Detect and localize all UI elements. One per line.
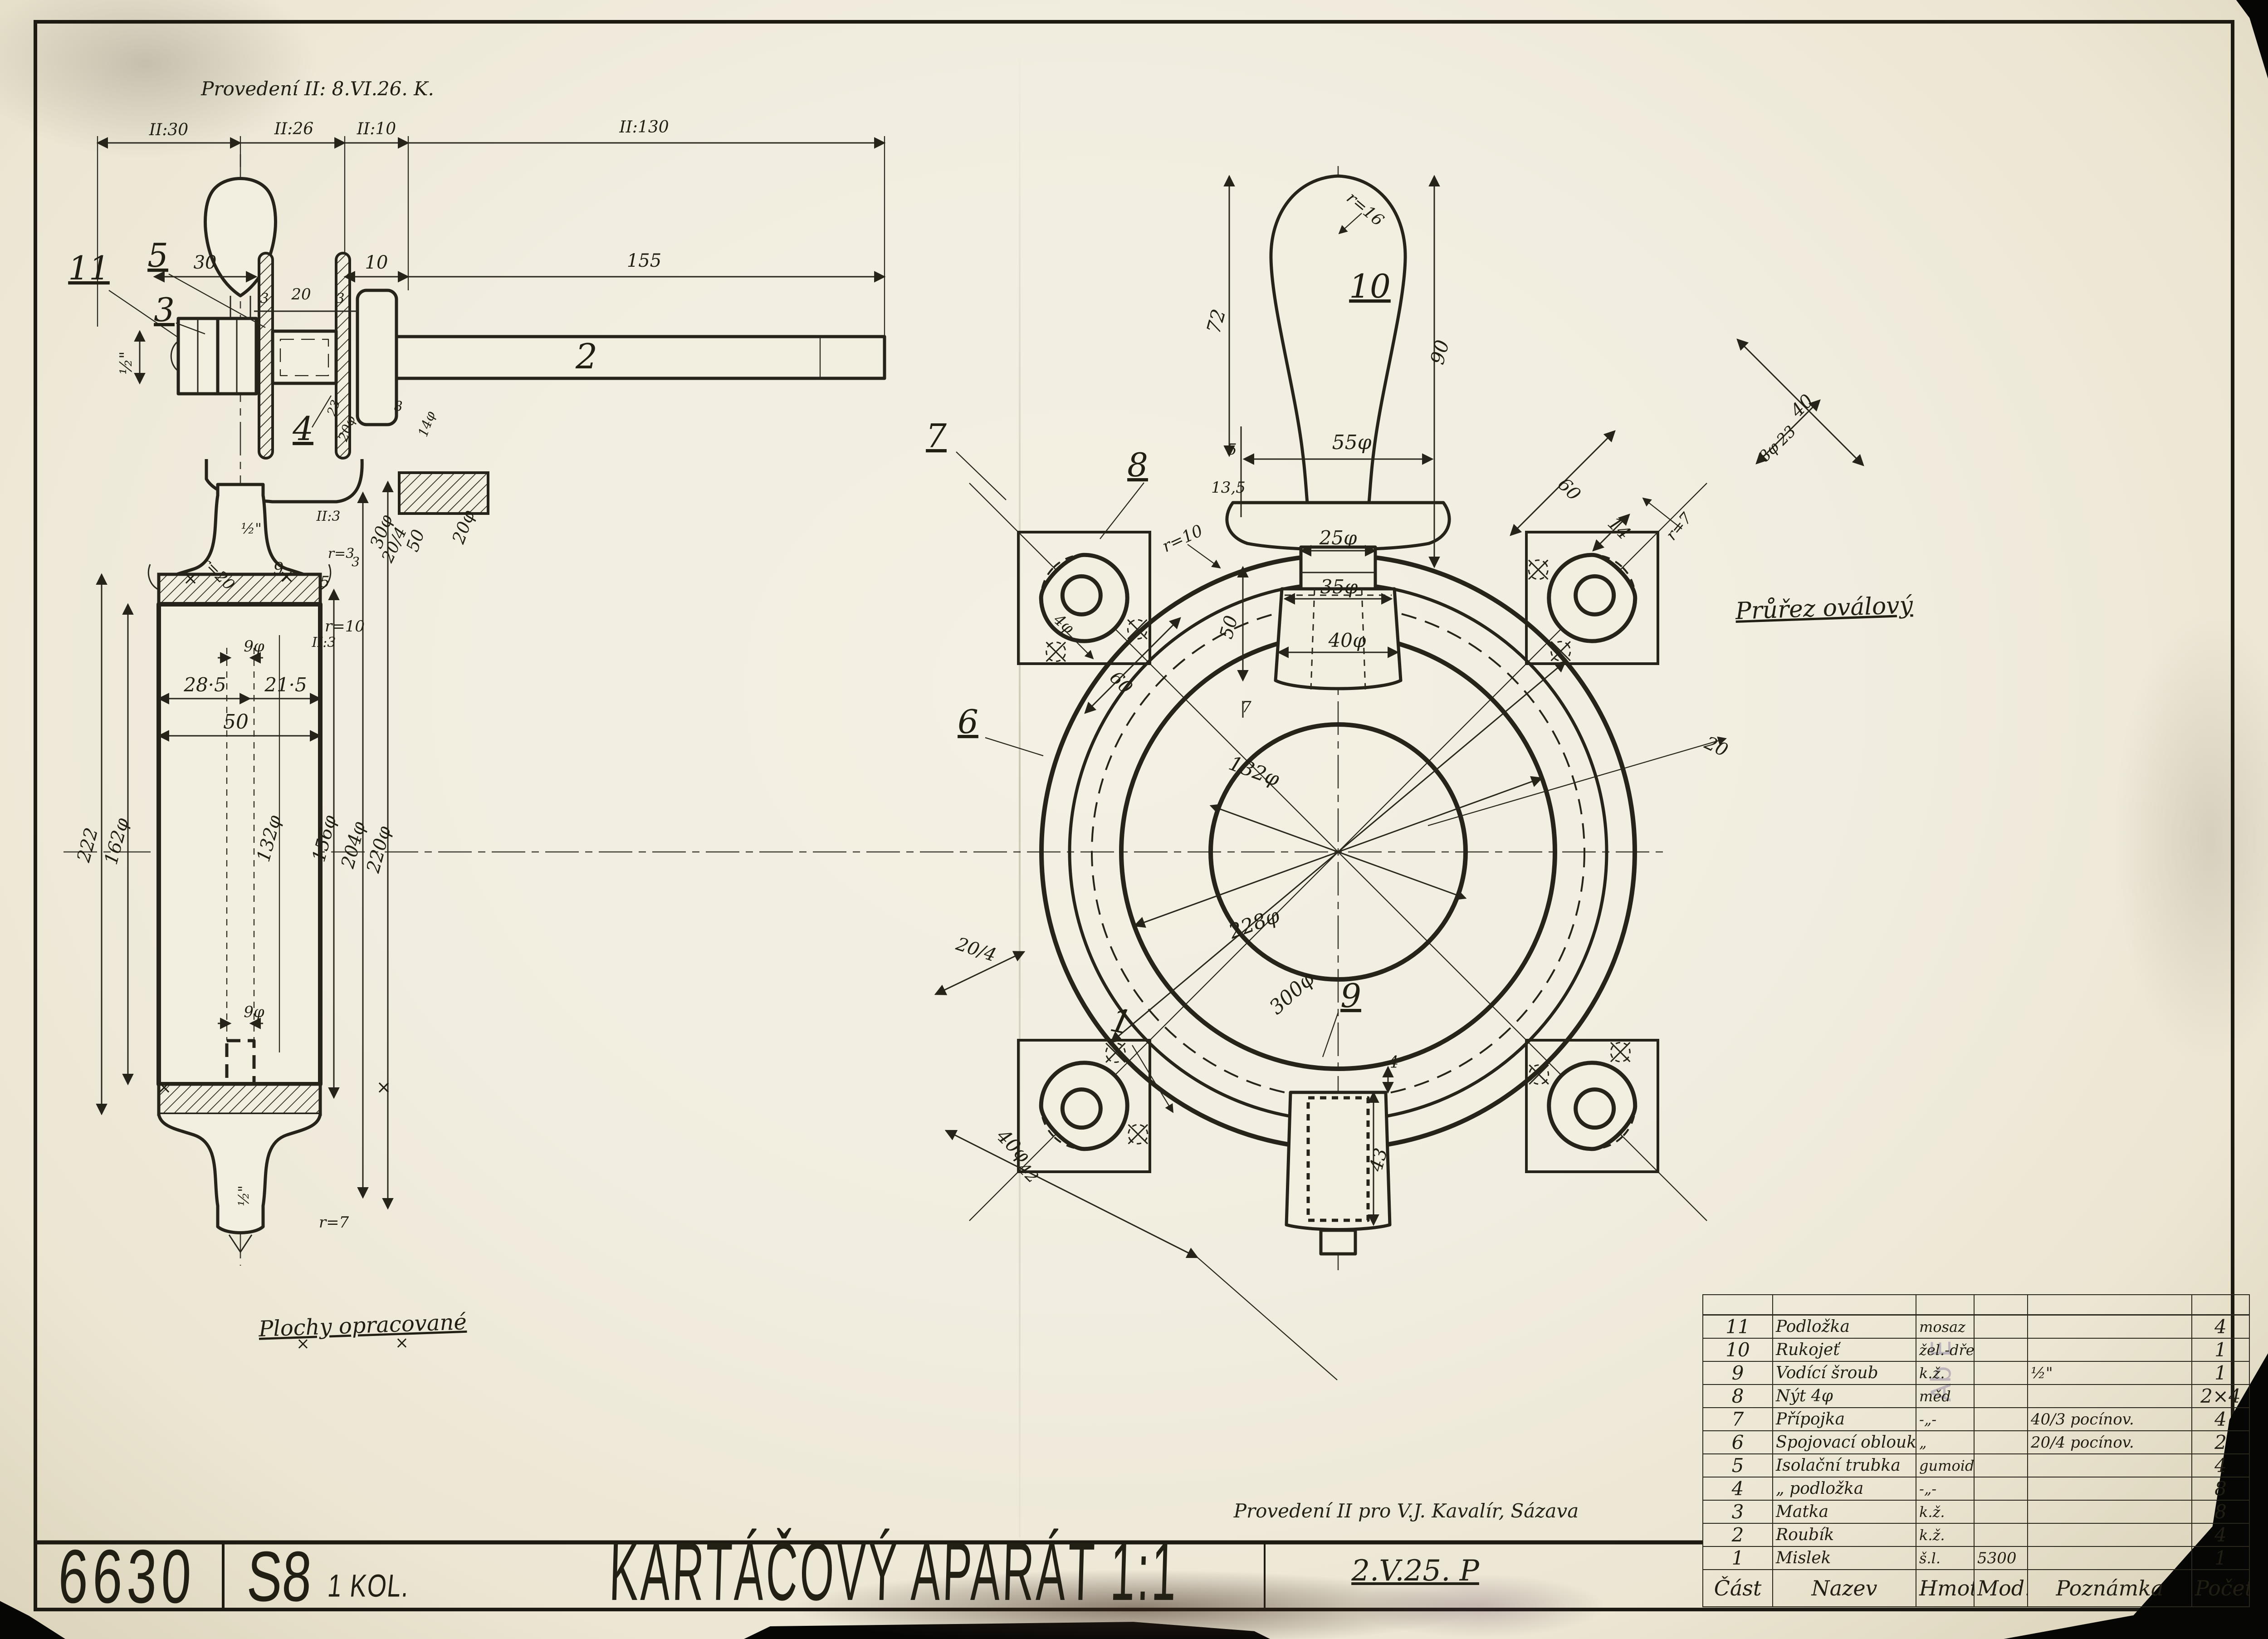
dim-label: 222 <box>73 826 102 865</box>
dim-label: II:26 <box>274 120 313 138</box>
dim-label: 10 <box>365 252 388 273</box>
table-cell: Matka <box>1773 1500 1916 1523</box>
table-cell <box>1974 1477 2028 1500</box>
table-cell: 4 <box>2192 1408 2249 1431</box>
dim-label: 20 <box>1701 732 1731 761</box>
table-cell: „ podložka <box>1773 1477 1916 1500</box>
dim-label: × <box>395 1334 409 1352</box>
column-header: Hmota <box>1916 1570 1974 1607</box>
dim-label: 3 <box>154 291 175 329</box>
table-cell <box>1974 1408 2028 1431</box>
table-row: 8Nýt 4φměd2×4 <box>1703 1385 2249 1408</box>
sheet-code: S8 <box>245 1536 313 1618</box>
dim-label: × <box>156 1077 172 1098</box>
dim-label: 90 <box>1426 338 1453 367</box>
dim-label: × <box>279 566 294 587</box>
table-cell: k.ž. <box>1916 1500 1974 1523</box>
sheet-id: S8 1 KOL. <box>247 1543 410 1610</box>
dim-label: 21·5 <box>264 674 307 696</box>
table-cell: měd <box>1916 1385 1974 1408</box>
table-cell: Vodící šroub <box>1773 1361 1916 1385</box>
dim-label: II:30 <box>149 121 188 139</box>
table-cell: 6 <box>1703 1431 1773 1454</box>
table-cell: 2×4 <box>2192 1385 2249 1408</box>
table-cell: Přípojka <box>1773 1408 1916 1431</box>
dim-label: 5 <box>147 236 168 274</box>
table-cell: 5300 <box>1974 1546 2028 1570</box>
dim-label: 50 <box>1216 613 1242 641</box>
parts-table-body: 11Podložkamosaz410Rukojeťžel.-dřevo19Vod… <box>1703 1315 2249 1570</box>
dim-label: 5 <box>320 573 330 591</box>
dim-label: Provedení II: 8.VI.26. K. <box>200 78 434 100</box>
dim-label: 2 <box>575 336 597 377</box>
dim-label: 9 <box>1340 977 1361 1015</box>
provedeni-note: Provedení II pro V.J. Kavalír, Sázava <box>1102 1500 1710 1522</box>
table-row: 11Podložkamosaz4 <box>1703 1315 2249 1339</box>
dim-label: 228φ <box>1225 904 1282 944</box>
dim-label: r=3 <box>328 546 355 562</box>
dim-label: 40φ <box>1328 629 1366 651</box>
table-cell: 4 <box>1703 1477 1773 1500</box>
table-cell <box>1974 1500 2028 1523</box>
table-row: 9Vodící šroubk.ž.½"1 <box>1703 1361 2249 1385</box>
dim-label: 13,5 <box>1211 479 1246 497</box>
dim-label: II:3 <box>312 635 336 651</box>
table-cell <box>2028 1454 2192 1477</box>
table-cell: 8 <box>2192 1500 2249 1523</box>
table-cell: Nýt 4φ <box>1773 1385 1916 1408</box>
dim-label: r=10 <box>1159 521 1206 556</box>
table-cell: ½" <box>2028 1361 2192 1385</box>
table-cell: mosaz <box>1916 1315 1974 1339</box>
dim-label: × <box>376 1077 391 1098</box>
dim-label: Plochy opracované <box>258 1309 467 1342</box>
table-row: 5Isolační trubkagumoid4 <box>1703 1454 2249 1477</box>
table-cell: žel.-dřevo <box>1916 1338 1974 1361</box>
dim-label: 8 <box>394 399 402 415</box>
dim-label: 5 <box>1227 440 1237 459</box>
table-cell: Spojovací oblouk <box>1773 1431 1916 1454</box>
parts-table-head: ČástNazevHmotaMod.PoznámkaPočet <box>1703 1570 2249 1607</box>
dim-label: 60 <box>1554 474 1585 505</box>
table-row: 3Matkak.ž.8 <box>1703 1500 2249 1523</box>
table-cell: -„- <box>1916 1477 1974 1500</box>
table-cell: 9 <box>1703 1361 1773 1385</box>
table-cell: 4 <box>2192 1454 2249 1477</box>
table-cell: š.l. <box>1916 1546 1974 1570</box>
table-cell: gumoid <box>1916 1454 1974 1477</box>
table-cell: 8 <box>1703 1385 1773 1408</box>
dim-label: 25φ <box>1319 527 1357 549</box>
dim-label: 55φ <box>1332 431 1372 454</box>
dim-label: 72 <box>1202 307 1230 336</box>
dim-label: 11 <box>68 249 110 287</box>
table-cell: 40/3 pocínov. <box>2028 1408 2192 1431</box>
table-cell <box>2028 1385 2192 1408</box>
table-cell <box>1974 1454 2028 1477</box>
sheet-count: 1 KOL. <box>326 1568 412 1605</box>
table-cell: „ <box>1916 1431 1974 1454</box>
side-view <box>98 136 885 1266</box>
table-cell <box>1974 1315 2028 1339</box>
dim-label: II:3 <box>316 509 341 524</box>
date-signature: 2.V.25. P <box>1288 1554 1542 1588</box>
column-header: Nazev <box>1773 1570 1916 1607</box>
table-cell <box>2028 1477 2192 1500</box>
dim-label: 40 <box>1786 391 1818 422</box>
dim-label: 7 <box>926 417 947 455</box>
dim-label: r=10 <box>325 617 365 636</box>
table-cell: Podložka <box>1773 1315 1916 1339</box>
dim-label: 35φ <box>1320 576 1358 598</box>
table-cell <box>2028 1523 2192 1546</box>
dim-label: 28·5 <box>183 674 226 696</box>
table-cell: 7 <box>1703 1408 1773 1431</box>
dim-label: 20 <box>291 285 311 303</box>
table-cell <box>2028 1546 2192 1570</box>
table-cell <box>2028 1500 2192 1523</box>
dim-label: r=7 <box>1662 509 1696 544</box>
table-row: 2Roubíkk.ž.4 <box>1703 1523 2249 1546</box>
dim-label: 14 <box>1603 513 1635 544</box>
table-cell <box>1974 1361 2028 1385</box>
table-cell <box>2028 1338 2192 1361</box>
dim-label: Průřez oválový <box>1735 592 1914 625</box>
dim-label: 8 <box>1127 446 1148 484</box>
blueprint-sheet: Provedení II: 8.VI.26. K.II:30II:26II:10… <box>0 0 2268 1639</box>
parts-table: 11Podložkamosaz410Rukojeťžel.-dřevo19Vod… <box>1702 1294 2233 1609</box>
table-cell: -„- <box>1916 1408 1974 1431</box>
table-cell <box>1974 1431 2028 1454</box>
dim-label: × <box>183 568 198 589</box>
table-row: 10Rukojeťžel.-dřevo1 <box>1703 1338 2249 1361</box>
table-cell: Roubík <box>1773 1523 1916 1546</box>
dim-label: × <box>296 1335 310 1353</box>
table-cell <box>1974 1385 2028 1408</box>
table-cell: 1 <box>2192 1338 2249 1361</box>
column-header: Poznámka <box>2028 1570 2192 1607</box>
table-cell: k.ž. <box>1916 1523 1974 1546</box>
table-cell: Isolační trubka <box>1773 1454 1916 1477</box>
dim-label: 6 <box>958 703 978 741</box>
dim-label: 9φ <box>244 1003 264 1021</box>
dim-label: 7 <box>1242 698 1251 716</box>
table-row: 6Spojovací oblouk„20/4 pocínov.2 <box>1703 1431 2249 1454</box>
dim-label: ½" <box>235 1185 252 1206</box>
dim-label: 1 <box>1107 1001 1135 1042</box>
table-row: 4„ podložka-„-8 <box>1703 1477 2249 1500</box>
table-cell <box>1974 1338 2028 1361</box>
dim-label: 9φ <box>244 637 264 656</box>
table-cell: 4 <box>2192 1523 2249 1546</box>
dim-label: 50 <box>223 710 249 734</box>
table-row: 7Přípojka-„-40/3 pocínov.4 <box>1703 1408 2249 1431</box>
table-cell: 2 <box>1703 1523 1773 1546</box>
table-cell <box>1974 1523 2028 1546</box>
table-cell: 1 <box>1703 1546 1773 1570</box>
table-cell: 1 <box>2192 1361 2249 1385</box>
dim-label: 155 <box>627 250 661 271</box>
table-cell: 2 <box>2192 1431 2249 1454</box>
table-cell: 1 <box>2192 1546 2249 1570</box>
dim-label: 4 <box>1388 1053 1399 1072</box>
column-header: Část <box>1703 1570 1773 1607</box>
dim-label: 20/4 <box>953 934 999 966</box>
table-cell: 5 <box>1703 1454 1773 1477</box>
table-cell: 4 <box>2192 1315 2249 1339</box>
dim-label: ½" <box>241 520 262 537</box>
table-cell: 20/4 pocínov. <box>2028 1431 2192 1454</box>
table-cell: 3 <box>1703 1500 1773 1523</box>
dim-label: II:10 <box>357 120 396 138</box>
table-cell: Rukojeť <box>1773 1338 1916 1361</box>
dim-label: 10 <box>1349 267 1391 305</box>
table-cell: Mislek <box>1773 1546 1916 1570</box>
dim-label: 3 <box>260 291 269 307</box>
dim-label: r=7 <box>319 1213 349 1232</box>
front-view <box>935 166 1863 1380</box>
table-cell: 11 <box>1703 1315 1773 1339</box>
dim-label: 14φ <box>415 409 439 439</box>
dim-label: ½" <box>117 351 136 374</box>
table-cell: k.ž. <box>1916 1361 1974 1385</box>
drawing-title: KARTÁČOVÝ APARÁT 1:1 <box>565 1516 1223 1626</box>
table-row: 1Mislekš.l.53001 <box>1703 1546 2249 1570</box>
drawing-number: 6630 <box>34 1533 219 1620</box>
table-cell <box>2028 1315 2192 1339</box>
table-cell: 8 <box>2192 1477 2249 1500</box>
table-cell: 10 <box>1703 1338 1773 1361</box>
dim-label: 30 <box>194 252 217 273</box>
column-header: Počet <box>2192 1570 2249 1607</box>
dim-label: 3 <box>336 291 344 307</box>
column-header: Mod. <box>1974 1570 2028 1607</box>
dim-label: 4 <box>292 410 313 448</box>
dim-label: II:130 <box>619 118 669 137</box>
dim-label: 60 <box>1105 667 1137 699</box>
